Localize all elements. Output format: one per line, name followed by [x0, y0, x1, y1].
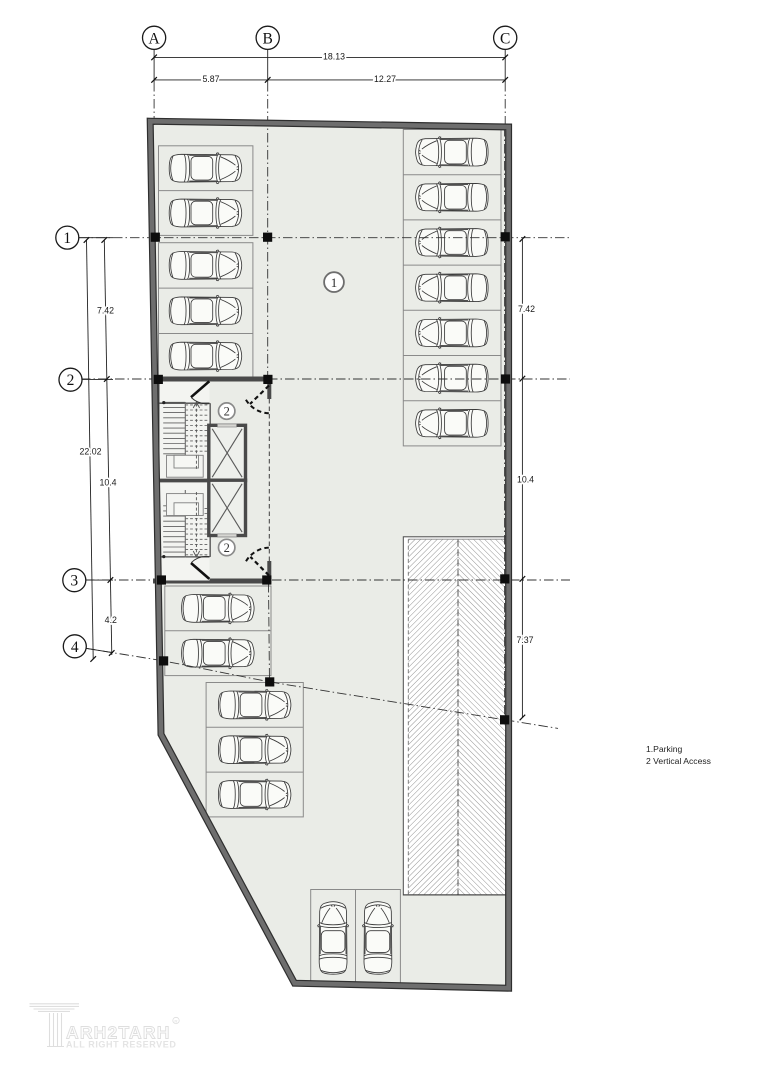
- svg-text:7.42: 7.42: [518, 304, 535, 314]
- svg-text:5.87: 5.87: [202, 74, 219, 84]
- svg-text:2: 2: [224, 405, 230, 419]
- svg-text:C: C: [500, 30, 510, 47]
- svg-text:2: 2: [67, 372, 75, 389]
- svg-text:10.4: 10.4: [99, 478, 116, 488]
- svg-text:2: 2: [224, 541, 230, 555]
- svg-text:22.02: 22.02: [79, 447, 101, 457]
- svg-text:1: 1: [331, 275, 338, 290]
- svg-text:10.4: 10.4: [517, 475, 534, 485]
- svg-text:ALL RIGHT RESERVED: ALL RIGHT RESERVED: [66, 1040, 176, 1050]
- svg-text:7.37: 7.37: [516, 635, 533, 645]
- svg-text:B: B: [263, 30, 273, 47]
- svg-text:A: A: [148, 30, 160, 47]
- svg-text:4: 4: [71, 639, 79, 656]
- svg-text:4.2: 4.2: [105, 615, 117, 625]
- svg-text:1: 1: [63, 230, 71, 247]
- svg-text:12.27: 12.27: [374, 74, 396, 84]
- svg-text:7.42: 7.42: [97, 305, 114, 315]
- svg-text:2 Vertical Access: 2 Vertical Access: [646, 756, 711, 766]
- svg-text:18.13: 18.13: [323, 52, 345, 62]
- svg-text:1.Parking: 1.Parking: [646, 744, 683, 754]
- svg-text:3: 3: [70, 573, 78, 590]
